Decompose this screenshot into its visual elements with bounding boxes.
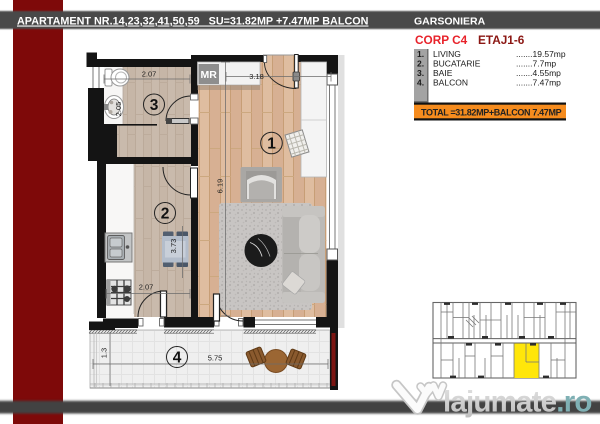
svg-text:GARSONIERA: GARSONIERA xyxy=(414,16,486,28)
svg-text:BUCATARIE: BUCATARIE xyxy=(433,59,481,69)
svg-text:2.07: 2.07 xyxy=(142,70,157,79)
svg-text:MR: MR xyxy=(201,69,218,81)
svg-text:4.: 4. xyxy=(417,78,424,88)
svg-text:3.: 3. xyxy=(417,68,424,78)
svg-text:LIVING: LIVING xyxy=(433,49,461,59)
svg-text:2.05: 2.05 xyxy=(114,102,123,117)
svg-text:CORP C4: CORP C4 xyxy=(415,33,468,47)
svg-text:1.3: 1.3 xyxy=(100,348,109,358)
svg-text:2.07: 2.07 xyxy=(139,283,154,292)
svg-text:2: 2 xyxy=(161,205,170,222)
svg-text:3.73: 3.73 xyxy=(169,239,178,254)
svg-text:BALCON: BALCON xyxy=(433,78,468,88)
svg-text:3: 3 xyxy=(150,97,159,114)
svg-text:3.18: 3.18 xyxy=(249,72,264,81)
svg-text:2.: 2. xyxy=(417,59,424,69)
svg-text:5.75: 5.75 xyxy=(208,354,223,363)
svg-text:.......19.57mp: .......19.57mp xyxy=(516,49,566,59)
svg-text:lajumate.ro: lajumate.ro xyxy=(443,386,592,419)
svg-text:1: 1 xyxy=(267,135,276,152)
svg-text:4: 4 xyxy=(173,349,182,366)
svg-text:.......7.7mp: .......7.7mp xyxy=(516,59,556,69)
svg-text:1.: 1. xyxy=(417,49,424,59)
svg-text:APARTAMENT NR.14,23,32,41,50,5: APARTAMENT NR.14,23,32,41,50,59 SU=31.82… xyxy=(17,16,369,28)
svg-text:BAIE: BAIE xyxy=(433,68,453,78)
svg-text:.......7.47mp: .......7.47mp xyxy=(516,78,561,88)
svg-text:6.19: 6.19 xyxy=(216,179,225,194)
svg-text:.......4.55mp: .......4.55mp xyxy=(516,68,561,78)
svg-text:ETAJ1-6: ETAJ1-6 xyxy=(478,33,525,47)
svg-text:TOTAL =31.82MP+BALCON 7.47MP: TOTAL =31.82MP+BALCON 7.47MP xyxy=(421,108,562,118)
